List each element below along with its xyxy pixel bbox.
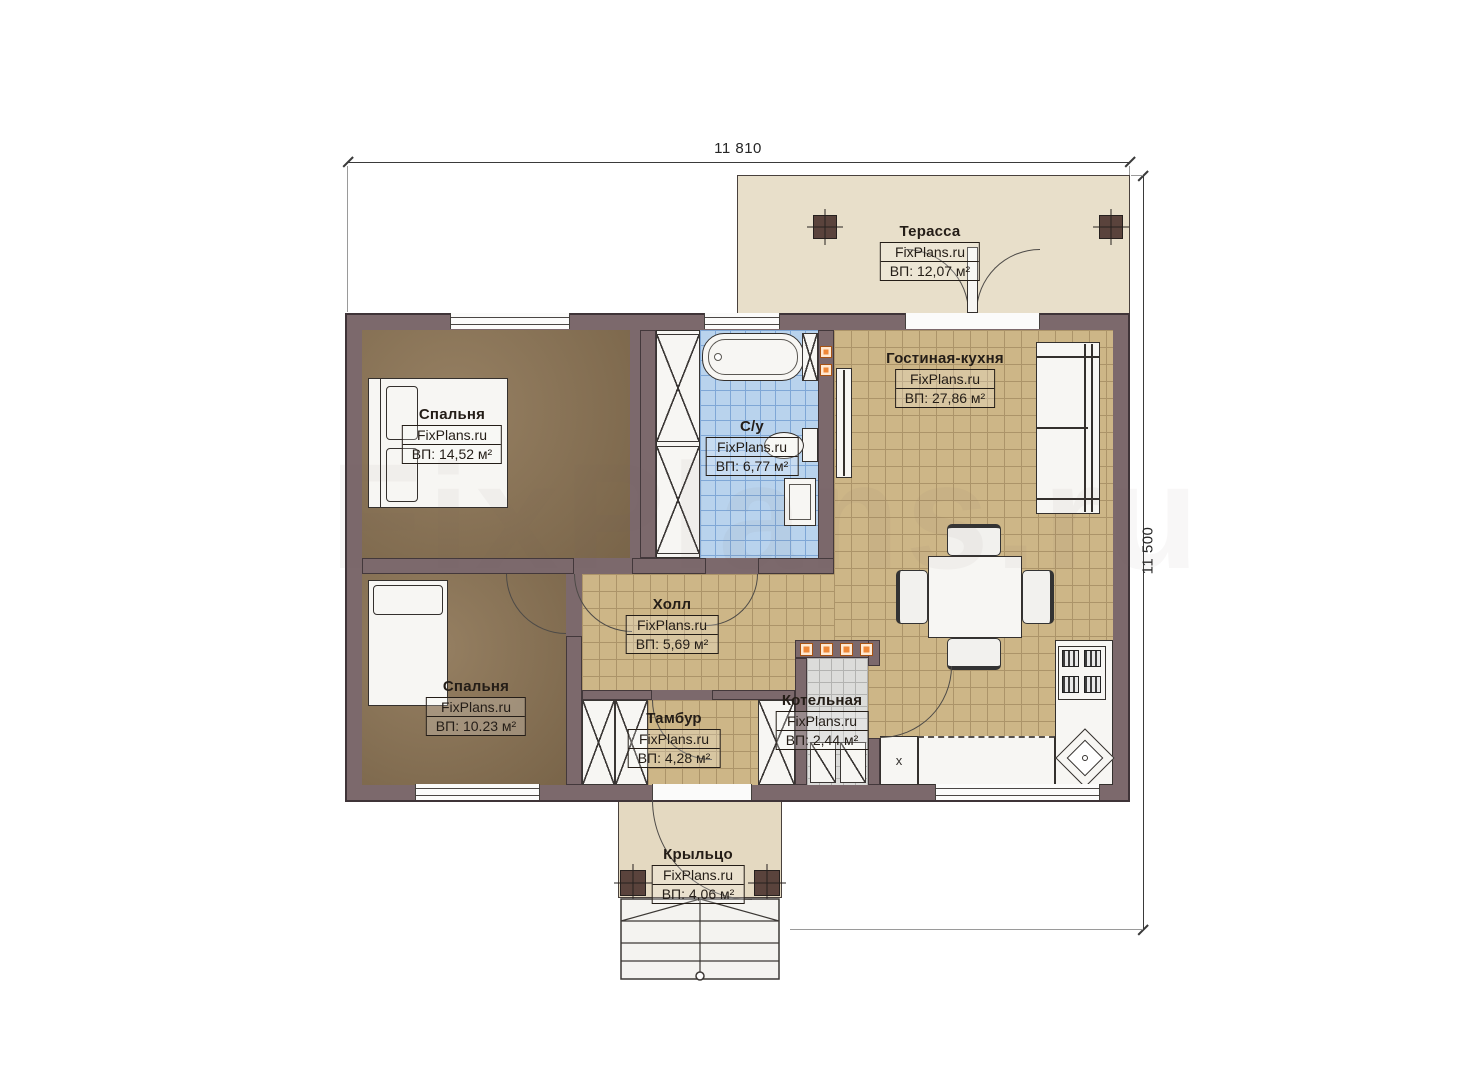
room-label-terrace: Терасса FixPlans.ru ВП: 12,07 м² bbox=[880, 223, 980, 281]
stove-burner bbox=[1062, 676, 1079, 693]
brand-label: FixPlans.ru bbox=[777, 712, 868, 731]
brand-label: FixPlans.ru bbox=[427, 698, 525, 717]
closet-x: х bbox=[880, 736, 918, 785]
room-label-boiler: Котельная FixPlans.ru ВП: 2,44 м² bbox=[776, 692, 869, 750]
room-label-living: Гостиная-кухня FixPlans.ru ВП: 27,86 м² bbox=[886, 350, 1004, 408]
boiler-wall-right bbox=[868, 738, 880, 785]
room-name: Спальня bbox=[402, 406, 502, 423]
brand-label: FixPlans.ru bbox=[896, 370, 994, 389]
stove-burner bbox=[1084, 676, 1101, 693]
area-label: ВП: 4,28 м² bbox=[629, 749, 720, 767]
room-name: Крыльцо bbox=[652, 846, 745, 863]
wardrobe-cell bbox=[656, 334, 700, 442]
wall-bedroom2-hall bbox=[566, 636, 582, 785]
room-name: Спальня bbox=[426, 678, 526, 695]
extension-line bbox=[1129, 166, 1130, 175]
chair bbox=[947, 638, 1001, 670]
bathtub-drain bbox=[714, 353, 722, 361]
dimension-width-label: 11 810 bbox=[648, 140, 828, 157]
wall-hall-tambour bbox=[582, 690, 652, 700]
stove-burner bbox=[1084, 650, 1101, 667]
vent-indicator bbox=[820, 364, 832, 376]
radiator-indicator bbox=[860, 643, 873, 656]
room-label-bedroom1: Спальня FixPlans.ru ВП: 14,52 м² bbox=[402, 406, 502, 464]
sofa-seat-split bbox=[1036, 427, 1088, 429]
area-label: ВП: 14,52 м² bbox=[403, 445, 501, 463]
room-name: Терасса bbox=[880, 223, 980, 240]
radiator-indicator bbox=[840, 643, 853, 656]
brand-label: FixPlans.ru bbox=[627, 616, 718, 635]
room-label-porch: Крыльцо FixPlans.ru ВП: 4,06 м² bbox=[652, 846, 745, 904]
kitchen-counter-bottom bbox=[918, 736, 1055, 785]
floor-plan: FixPlans.ru 11 810 11 500 bbox=[0, 0, 1473, 1080]
window bbox=[704, 313, 780, 329]
terrace-door-opening bbox=[905, 313, 1040, 329]
window bbox=[935, 784, 1100, 800]
room-label-tambour: Тамбур FixPlans.ru ВП: 4,28 м² bbox=[628, 710, 721, 768]
radiator-indicator bbox=[820, 643, 833, 656]
area-label: ВП: 4,06 м² bbox=[653, 885, 744, 903]
room-name: Котельная bbox=[776, 692, 869, 709]
corner-shelf bbox=[802, 333, 818, 381]
extension-line bbox=[790, 929, 1143, 930]
room-name: С/у bbox=[706, 418, 799, 435]
room-name: Холл bbox=[626, 596, 719, 613]
extension-line bbox=[1131, 175, 1143, 176]
area-label: ВП: 10.23 м² bbox=[427, 717, 525, 735]
vent-indicator bbox=[820, 346, 832, 358]
stove-burner bbox=[1062, 650, 1079, 667]
area-label: ВП: 6,77 м² bbox=[707, 457, 798, 475]
radiator-indicator bbox=[800, 643, 813, 656]
brand-label: FixPlans.ru bbox=[707, 438, 798, 457]
kitchen-sink-drain bbox=[1082, 755, 1088, 761]
brand-label: FixPlans.ru bbox=[403, 426, 501, 445]
porch-column bbox=[754, 870, 780, 896]
terrace-column bbox=[1099, 215, 1123, 239]
terrace-column bbox=[813, 215, 837, 239]
room-label-hall: Холл FixPlans.ru ВП: 5,69 м² bbox=[626, 596, 719, 654]
dimension-line-top bbox=[348, 162, 1130, 163]
area-label: ВП: 27,86 м² bbox=[896, 389, 994, 407]
porch-steps bbox=[620, 898, 780, 986]
extension-line bbox=[347, 166, 348, 312]
entrance-door-opening bbox=[652, 784, 752, 800]
brand-label: FixPlans.ru bbox=[653, 866, 744, 885]
room-label-bathroom: С/у FixPlans.ru ВП: 6,77 м² bbox=[706, 418, 799, 476]
window bbox=[450, 313, 570, 329]
brand-label: FixPlans.ru bbox=[629, 730, 720, 749]
area-label: ВП: 2,44 м² bbox=[777, 731, 868, 749]
area-label: ВП: 12,07 м² bbox=[881, 262, 979, 280]
porch-column bbox=[620, 870, 646, 896]
brand-label: FixPlans.ru bbox=[881, 243, 979, 262]
room-name: Гостиная-кухня bbox=[886, 350, 1004, 367]
room-label-bedroom2: Спальня FixPlans.ru ВП: 10.23 м² bbox=[426, 678, 526, 736]
room-name: Тамбур bbox=[628, 710, 721, 727]
window bbox=[415, 784, 540, 800]
area-label: ВП: 5,69 м² bbox=[627, 635, 718, 653]
closet-cell bbox=[582, 700, 615, 785]
